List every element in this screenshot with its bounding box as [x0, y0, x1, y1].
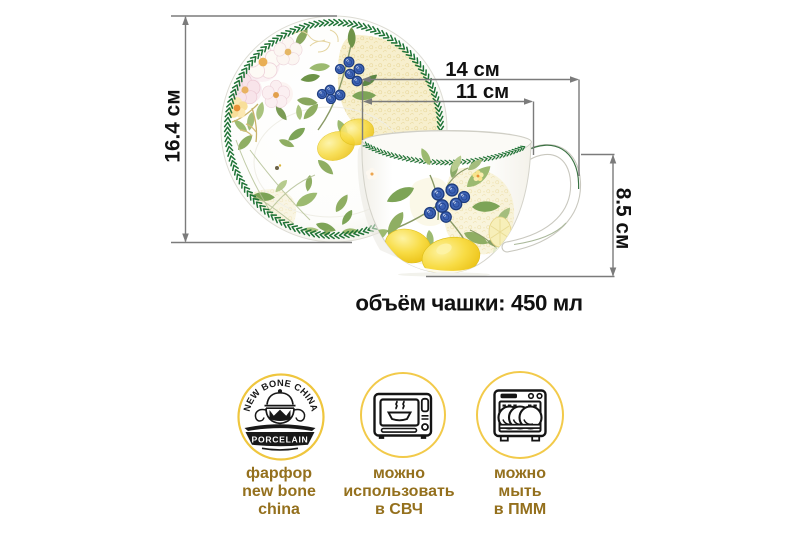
svg-text:мыть: мыть	[498, 483, 541, 500]
svg-text:можно: можно	[373, 465, 425, 482]
svg-text:16.4 см: 16.4 см	[162, 89, 185, 162]
svg-text:фарфор: фарфор	[246, 465, 312, 482]
svg-text:в ПММ: в ПММ	[494, 501, 546, 518]
svg-text:8.5 см: 8.5 см	[612, 188, 635, 250]
svg-text:в СВЧ: в СВЧ	[375, 501, 423, 518]
svg-text:china: china	[258, 501, 300, 518]
svg-text:PORCELAIN: PORCELAIN	[252, 434, 309, 444]
svg-text:11 см: 11 см	[456, 81, 509, 103]
svg-text:объём чашки: 450 мл: объём чашки: 450 мл	[355, 291, 582, 316]
svg-text:new bone: new bone	[242, 483, 316, 500]
svg-text:14 см: 14 см	[445, 59, 499, 81]
svg-text:можно: можно	[494, 465, 546, 482]
svg-text:использовать: использовать	[343, 483, 454, 500]
